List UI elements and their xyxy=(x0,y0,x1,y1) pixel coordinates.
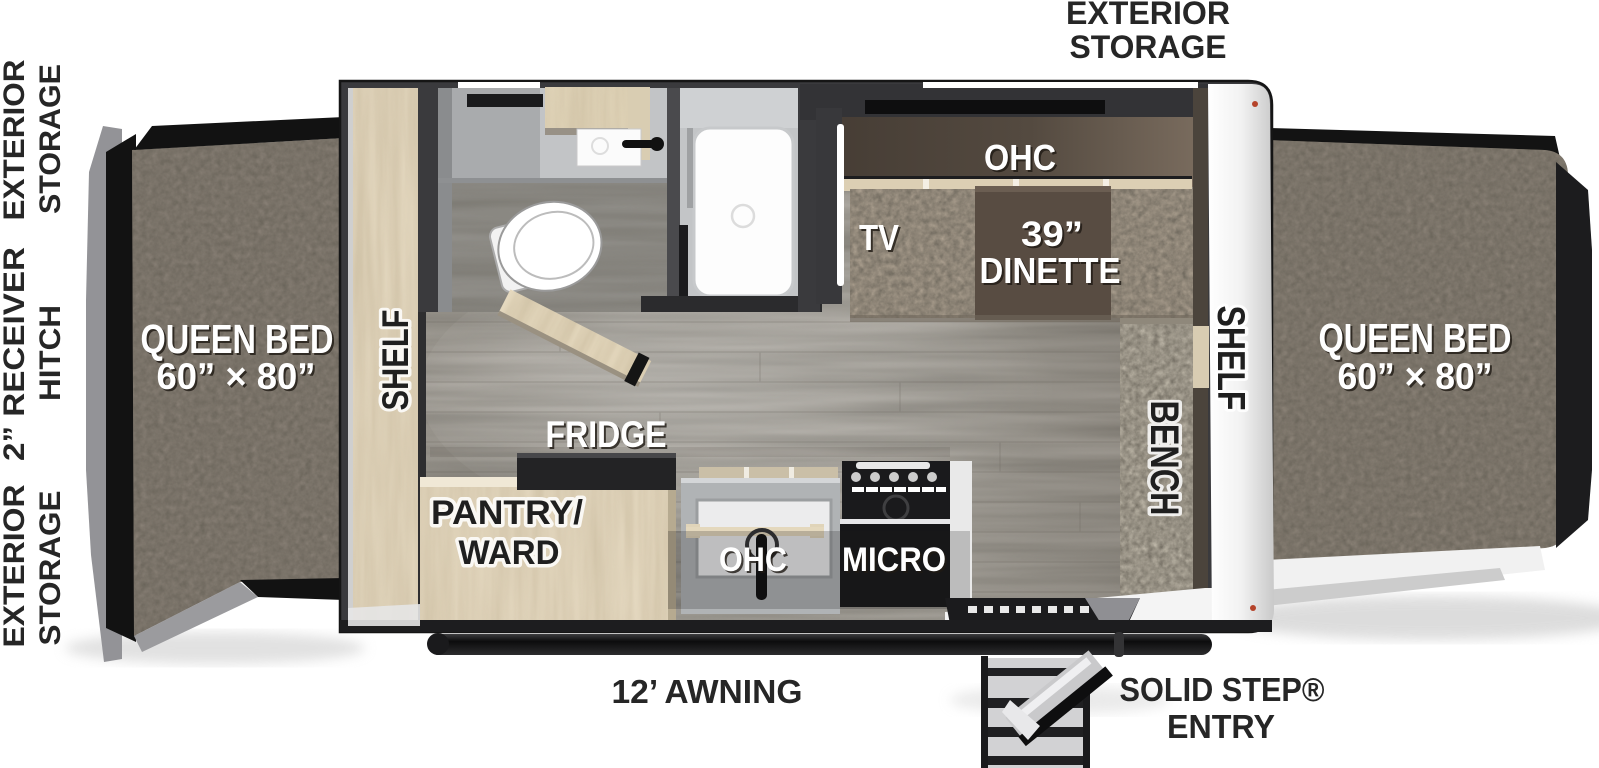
svg-text:OHC: OHC xyxy=(719,541,787,579)
svg-text:TV: TV xyxy=(859,217,899,258)
svg-text:PANTRY/: PANTRY/ xyxy=(431,494,584,532)
svg-text:60” × 80”: 60” × 80” xyxy=(157,356,316,397)
svg-text:DINETTE: DINETTE xyxy=(980,250,1121,291)
svg-text:SOLID STEP®: SOLID STEP® xyxy=(1120,671,1325,708)
svg-text:HITCH: HITCH xyxy=(34,305,67,401)
svg-text:39”: 39” xyxy=(1021,215,1083,254)
svg-text:STORAGE: STORAGE xyxy=(34,491,67,646)
svg-text:SHELF: SHELF xyxy=(375,310,416,411)
svg-text:STORAGE: STORAGE xyxy=(34,64,67,214)
svg-text:EXTERIOR: EXTERIOR xyxy=(1066,0,1230,31)
svg-text:SHELF: SHELF xyxy=(1209,306,1252,411)
svg-text:MICRO: MICRO xyxy=(842,541,946,579)
svg-text:2” RECEIVER: 2” RECEIVER xyxy=(0,247,31,461)
svg-text:EXTERIOR: EXTERIOR xyxy=(0,484,31,647)
svg-text:FRIDGE: FRIDGE xyxy=(546,414,667,455)
svg-text:OHC: OHC xyxy=(984,137,1056,178)
svg-text:STORAGE: STORAGE xyxy=(1070,29,1227,65)
svg-text:12’ AWNING: 12’ AWNING xyxy=(612,673,803,710)
svg-text:BENCH: BENCH xyxy=(1142,401,1186,516)
svg-text:ENTRY: ENTRY xyxy=(1167,708,1275,745)
svg-text:WARD: WARD xyxy=(459,534,560,572)
svg-text:QUEEN BED: QUEEN BED xyxy=(1319,315,1512,361)
svg-text:60” × 80”: 60” × 80” xyxy=(1338,356,1493,397)
svg-text:EXTERIOR: EXTERIOR xyxy=(0,59,31,220)
